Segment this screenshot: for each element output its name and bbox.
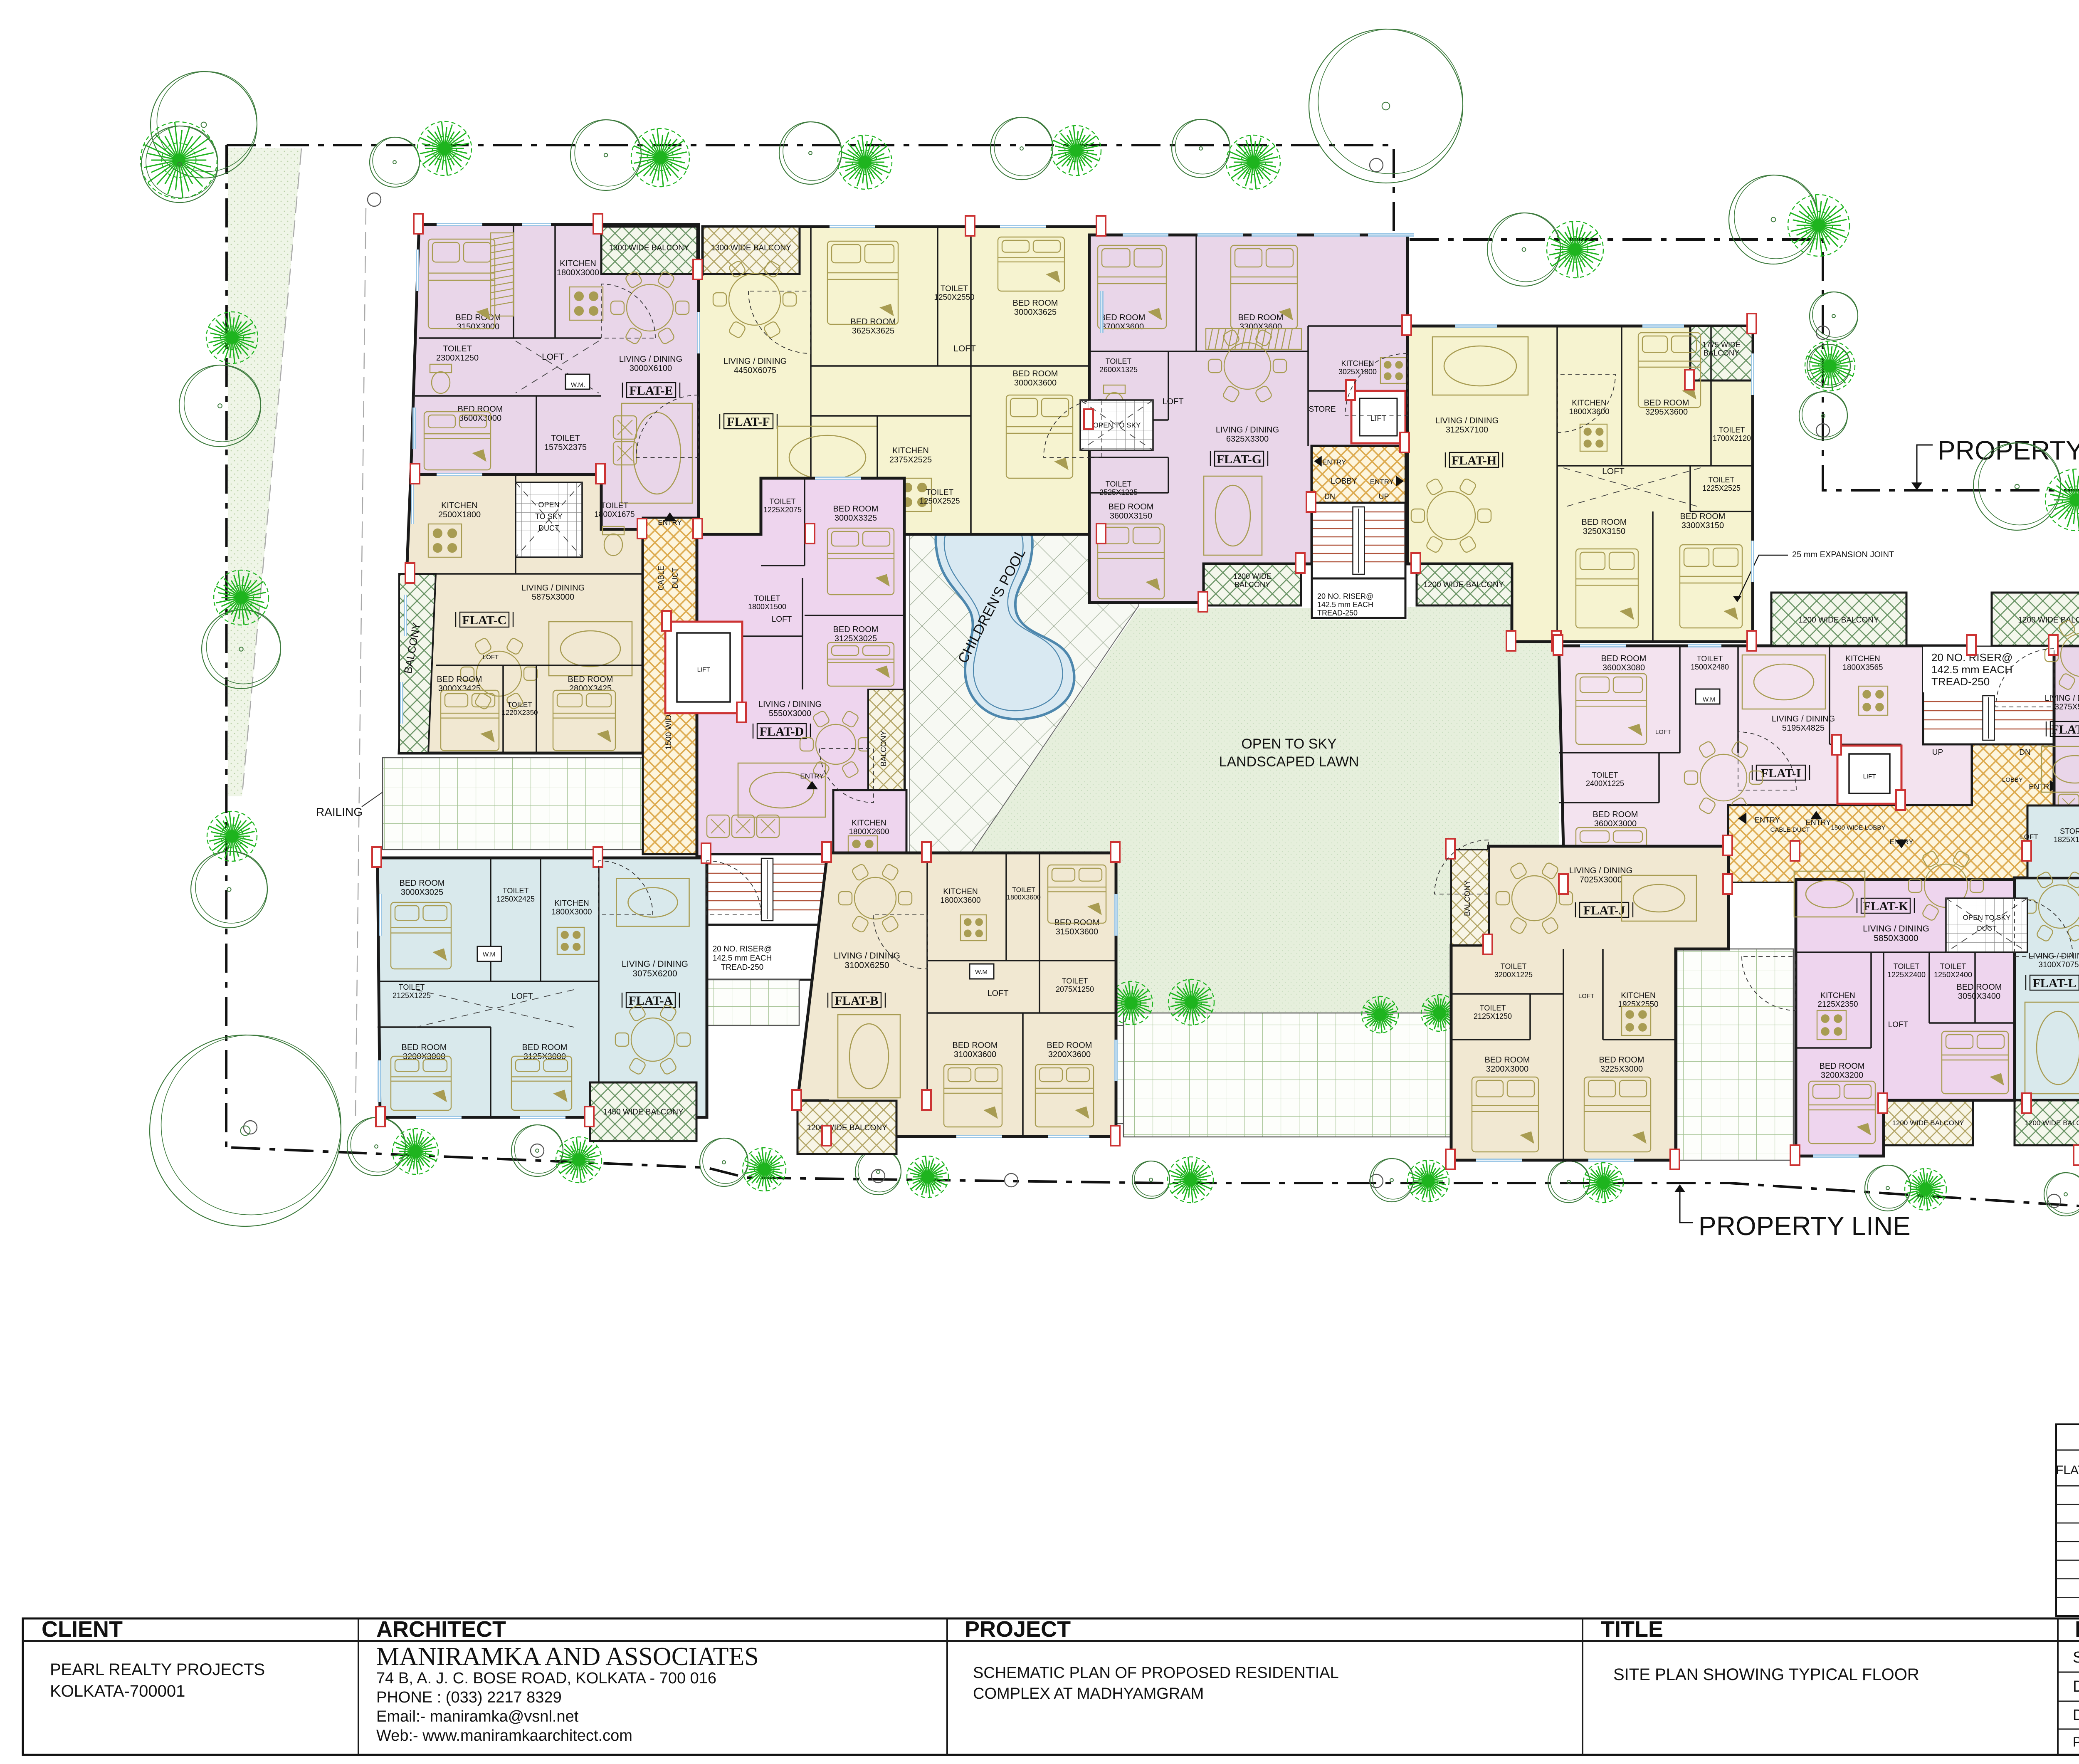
- svg-text:KITCHEN1800X3000: KITCHEN1800X3000: [551, 899, 592, 917]
- svg-text:SCHEME - 02: SCHEME - 02: [2073, 1649, 2079, 1666]
- svg-text:W.M.: W.M.: [571, 381, 585, 388]
- svg-text:DEALT BY - ANJU: DEALT BY - ANJU: [2073, 1678, 2079, 1695]
- svg-text:DN: DN: [2019, 748, 2030, 757]
- svg-text:BED ROOM3000X3325: BED ROOM3000X3325: [833, 504, 879, 523]
- svg-text:BED ROOM3050X3400: BED ROOM3050X3400: [1957, 983, 2002, 1001]
- svg-text:DRAWING INFORMATION: DRAWING INFORMATION: [2075, 1617, 2079, 1642]
- svg-text:LANDSCAPED LAWN: LANDSCAPED LAWN: [1219, 754, 1359, 770]
- svg-text:1200 WIDE BALCONY: 1200 WIDE BALCONY: [1892, 1119, 1964, 1127]
- svg-text:74 B, A. J. C. BOSE ROAD, KO: 74 B, A. J. C. BOSE ROAD, KOLKATA - 700 …: [376, 1670, 716, 1687]
- svg-text:CABLE DUCT: CABLE DUCT: [1770, 826, 1810, 833]
- svg-text:COMPLEX AT MADHYAMGRAM: COMPLEX AT MADHYAMGRAM: [973, 1685, 1204, 1702]
- svg-text:UP: UP: [1932, 748, 1943, 757]
- svg-text:DUCT: DUCT: [538, 524, 559, 532]
- svg-text:OPEN TO SKY: OPEN TO SKY: [1241, 736, 1336, 752]
- svg-text:BED ROOM3000X3625: BED ROOM3000X3625: [1013, 299, 1058, 317]
- svg-text:25 mm EXPANSION JOINT: 25 mm EXPANSION JOINT: [1792, 550, 1894, 559]
- svg-text:W.M: W.M: [483, 951, 495, 958]
- svg-text:FLAT-M: FLAT-M: [2051, 723, 2079, 736]
- svg-text:ENTRY: ENTRY: [1370, 478, 1394, 486]
- svg-text:LOFT: LOFT: [1888, 1020, 1909, 1029]
- svg-text:LOFT: LOFT: [1655, 729, 1671, 736]
- svg-text:1200 WIDE BALCONY: 1200 WIDE BALCONY: [807, 1124, 887, 1132]
- svg-text:BED ROOM3200X3200: BED ROOM3200X3200: [1820, 1062, 1865, 1080]
- svg-text:1200 WIDE BALCONY: 1200 WIDE BALCONY: [1423, 581, 1504, 589]
- svg-text:BED ROOM3250X3150: BED ROOM3250X3150: [1582, 518, 1627, 536]
- svg-text:ENTRY: ENTRY: [1755, 816, 1780, 824]
- svg-text:KITCHEN1800X3565: KITCHEN1800X3565: [1842, 655, 1883, 672]
- svg-text:1450 WIDE BALCONY: 1450 WIDE BALCONY: [603, 1108, 684, 1117]
- svg-text:142.5 mm EACH: 142.5 mm EACH: [1931, 663, 2012, 676]
- svg-text:ENTRY: ENTRY: [1322, 458, 1346, 466]
- svg-text:KITCHEN2500X1800: KITCHEN2500X1800: [438, 501, 481, 519]
- svg-text:FLAT-E: FLAT-E: [629, 384, 673, 398]
- svg-text:ENTRY: ENTRY: [800, 772, 824, 780]
- svg-text:FLAT-D: FLAT-D: [760, 725, 804, 739]
- svg-text:TREAD-250: TREAD-250: [1317, 609, 1358, 617]
- svg-text:FLAT MKD.: FLAT MKD.: [2056, 1463, 2079, 1477]
- svg-text:OPEN TO SKY: OPEN TO SKY: [1093, 421, 1141, 429]
- svg-text:KITCHEN3025X1800: KITCHEN3025X1800: [1338, 359, 1377, 376]
- svg-text:Email:- maniramka@vsnl.net: Email:- maniramka@vsnl.net: [376, 1708, 579, 1725]
- svg-text:BALCONY: BALCONY: [1463, 880, 1472, 916]
- svg-text:PROPERTY LINE: PROPERTY LINE: [1938, 435, 2079, 465]
- svg-text:1500 WIDE LOBBY: 1500 WIDE LOBBY: [1831, 824, 1886, 831]
- svg-text:LOBBY: LOBBY: [1331, 477, 1357, 486]
- svg-text:CLIENT: CLIENT: [42, 1617, 123, 1642]
- svg-text:FLAT-C: FLAT-C: [462, 613, 507, 627]
- svg-text:PHONE : (033) 2217 8329: PHONE : (033) 2217 8329: [376, 1689, 562, 1706]
- svg-text:SITE PLAN SHOWING TYPICAL FLOO: SITE PLAN SHOWING TYPICAL FLOOR: [1613, 1665, 1919, 1684]
- svg-text:W.M: W.M: [975, 968, 988, 976]
- svg-text:20 NO. RISER@: 20 NO. RISER@: [1317, 592, 1373, 600]
- svg-text:LIFT: LIFT: [1863, 773, 1876, 780]
- svg-text:CABLE: CABLE: [657, 566, 665, 590]
- svg-text:LOFT: LOFT: [987, 989, 1008, 998]
- svg-text:1200 WIDE BALCONY: 1200 WIDE BALCONY: [2025, 1119, 2079, 1127]
- svg-text:KITCHEN2125X2350: KITCHEN2125X2350: [1817, 991, 1858, 1009]
- svg-text:UP: UP: [1378, 492, 1389, 501]
- svg-text:1300 WIDE BALCONY: 1300 WIDE BALCONY: [609, 244, 689, 252]
- svg-text:1200 WIDE BALCONY: 1200 WIDE BALCONY: [1798, 616, 1879, 625]
- svg-text:1300 WIDE BALCONY: 1300 WIDE BALCONY: [711, 244, 791, 252]
- svg-text:LOFT: LOFT: [953, 344, 976, 353]
- svg-text:KITCHEN1800X3600: KITCHEN1800X3600: [1569, 399, 1609, 416]
- svg-text:OPEN: OPEN: [538, 501, 559, 509]
- svg-text:Web:- www.maniramkaarchitect.c: Web:- www.maniramkaarchitect.com: [376, 1727, 632, 1744]
- svg-text:BED ROOM3000X3025: BED ROOM3000X3025: [400, 879, 445, 897]
- svg-text:BED ROOM3600X3080: BED ROOM3600X3080: [1601, 654, 1647, 672]
- svg-text:BED ROOM3200X3000: BED ROOM3200X3000: [1485, 1055, 1530, 1074]
- svg-text:142.5 mm EACH: 142.5 mm EACH: [713, 954, 772, 963]
- svg-text:DUCT: DUCT: [1977, 924, 1996, 932]
- svg-text:1200 WIDEBALCONY: 1200 WIDEBALCONY: [1233, 572, 1272, 589]
- svg-text:DN: DN: [1324, 492, 1335, 501]
- svg-text:BED ROOM3100X3600: BED ROOM3100X3600: [953, 1041, 998, 1059]
- svg-text:W.M: W.M: [1703, 696, 1715, 703]
- svg-text:LOFT: LOFT: [511, 992, 533, 1001]
- svg-text:TITLE: TITLE: [1601, 1617, 1663, 1642]
- svg-text:TREAD-250: TREAD-250: [721, 963, 763, 972]
- svg-text:PROJECT: PROJECT: [965, 1617, 1071, 1642]
- svg-text:KITCHEN1800X3600: KITCHEN1800X3600: [940, 887, 980, 905]
- svg-text:BED ROOM3125X3000: BED ROOM3125X3000: [522, 1043, 568, 1061]
- svg-text:DUCT: DUCT: [671, 568, 679, 588]
- svg-text:BED ROOM3625X3625: BED ROOM3625X3625: [851, 317, 896, 336]
- svg-text:FLAT-I: FLAT-I: [1761, 766, 1801, 780]
- svg-text:LOFT: LOFT: [1578, 993, 1594, 1000]
- svg-text:FLAT-K: FLAT-K: [1863, 899, 1909, 913]
- svg-text:LIFT: LIFT: [697, 666, 710, 673]
- svg-text:TO SKY: TO SKY: [535, 512, 563, 521]
- svg-text:SCHEMATIC PLAN OF PROPOSED RES: SCHEMATIC PLAN OF PROPOSED RESIDENTIAL: [973, 1664, 1339, 1682]
- svg-text:FLAT-B: FLAT-B: [835, 994, 878, 1008]
- svg-text:MANIRAMKA AND ASSOCIATES: MANIRAMKA AND ASSOCIATES: [376, 1643, 759, 1671]
- svg-text:BED ROOM3600X3150: BED ROOM3600X3150: [1109, 502, 1154, 521]
- svg-text:BED ROOM3150X3600: BED ROOM3150X3600: [1054, 918, 1100, 936]
- svg-text:20 NO. RISER@: 20 NO. RISER@: [713, 945, 772, 954]
- svg-text:FLAT-G: FLAT-G: [1217, 452, 1262, 466]
- svg-text:BED ROOM3300X3150: BED ROOM3300X3150: [1680, 512, 1726, 530]
- svg-text:BED ROOM3225X3000: BED ROOM3225X3000: [1599, 1055, 1644, 1074]
- svg-text:BED ROOM3600X3000: BED ROOM3600X3000: [1593, 810, 1638, 828]
- svg-text:FLAT-L: FLAT-L: [2032, 976, 2076, 990]
- svg-text:LOFT: LOFT: [1162, 397, 1183, 406]
- svg-text:FLAT-H: FLAT-H: [1452, 454, 1496, 467]
- svg-text:142.5 mm EACH: 142.5 mm EACH: [1317, 600, 1373, 609]
- svg-text:BED ROOM3125X3025: BED ROOM3125X3025: [833, 625, 879, 643]
- svg-text:ARCHITECT: ARCHITECT: [376, 1617, 506, 1642]
- svg-text:PEARL REALTY PROJECTS: PEARL REALTY PROJECTS: [50, 1660, 265, 1679]
- svg-text:LOBBY: LOBBY: [2002, 776, 2023, 783]
- svg-text:LOFT: LOFT: [483, 654, 499, 661]
- svg-text:ENTRY: ENTRY: [1806, 818, 1831, 827]
- svg-text:DATE : - 18.02.2013: DATE : - 18.02.2013: [2073, 1706, 2079, 1723]
- svg-text:BED ROOM3000X3600: BED ROOM3000X3600: [1013, 369, 1058, 388]
- svg-text:BED ROOM3200X3000: BED ROOM3200X3000: [402, 1043, 447, 1061]
- svg-text:OPEN TO SKY: OPEN TO SKY: [1963, 914, 2011, 922]
- svg-text:1775 WIDEBALCONY: 1775 WIDEBALCONY: [1702, 341, 1741, 357]
- svg-text:PROPERTY LINE: PROPERTY LINE: [1699, 1211, 1911, 1241]
- svg-text:LOFT: LOFT: [1602, 467, 1625, 476]
- svg-text:KITCHEN1800X2600: KITCHEN1800X2600: [849, 819, 889, 836]
- svg-text:LOFT: LOFT: [772, 615, 792, 624]
- svg-text:LOFT: LOFT: [542, 352, 564, 362]
- svg-text:ENTRY: ENTRY: [658, 519, 681, 526]
- svg-text:ENTRY: ENTRY: [1889, 838, 1913, 846]
- svg-text:FLAT-J: FLAT-J: [1583, 904, 1625, 917]
- svg-text:LOFT: LOFT: [2020, 833, 2038, 841]
- svg-text:KITCHEN1800X3000: KITCHEN1800X3000: [557, 259, 599, 277]
- svg-text:STORE: STORE: [1309, 405, 1336, 414]
- svg-text:BALCONY: BALCONY: [879, 731, 888, 766]
- svg-text:BED ROOM3600X3000: BED ROOM3600X3000: [458, 405, 503, 423]
- svg-text:1200 WIDE BALCONY: 1200 WIDE BALCONY: [2018, 616, 2079, 625]
- svg-text:KITCHEN2375X2525: KITCHEN2375X2525: [889, 446, 932, 464]
- svg-text:KOLKATA-700001: KOLKATA-700001: [50, 1682, 185, 1700]
- svg-text:BED ROOM3200X3600: BED ROOM3200X3600: [1047, 1041, 1092, 1059]
- svg-text:FLAT-F: FLAT-F: [727, 415, 770, 429]
- svg-text:TREAD-250: TREAD-250: [1931, 675, 1990, 688]
- svg-text:RAILING: RAILING: [316, 805, 363, 818]
- svg-text:PATH:comp6\d\current project b: PATH:comp6\d\current project back up \ M…: [2073, 1734, 2079, 1749]
